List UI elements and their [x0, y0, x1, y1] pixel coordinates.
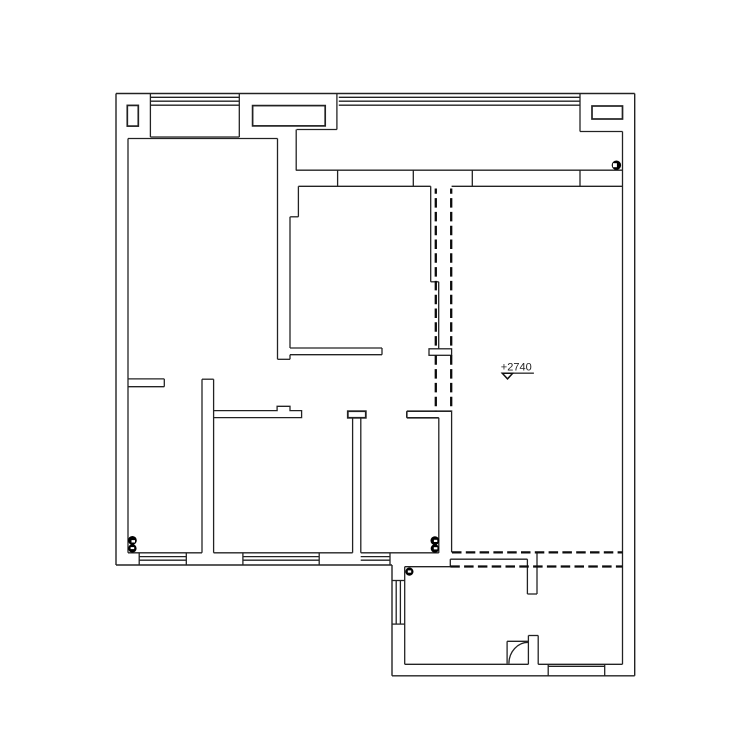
- svg-text:+2740: +2740: [501, 362, 532, 374]
